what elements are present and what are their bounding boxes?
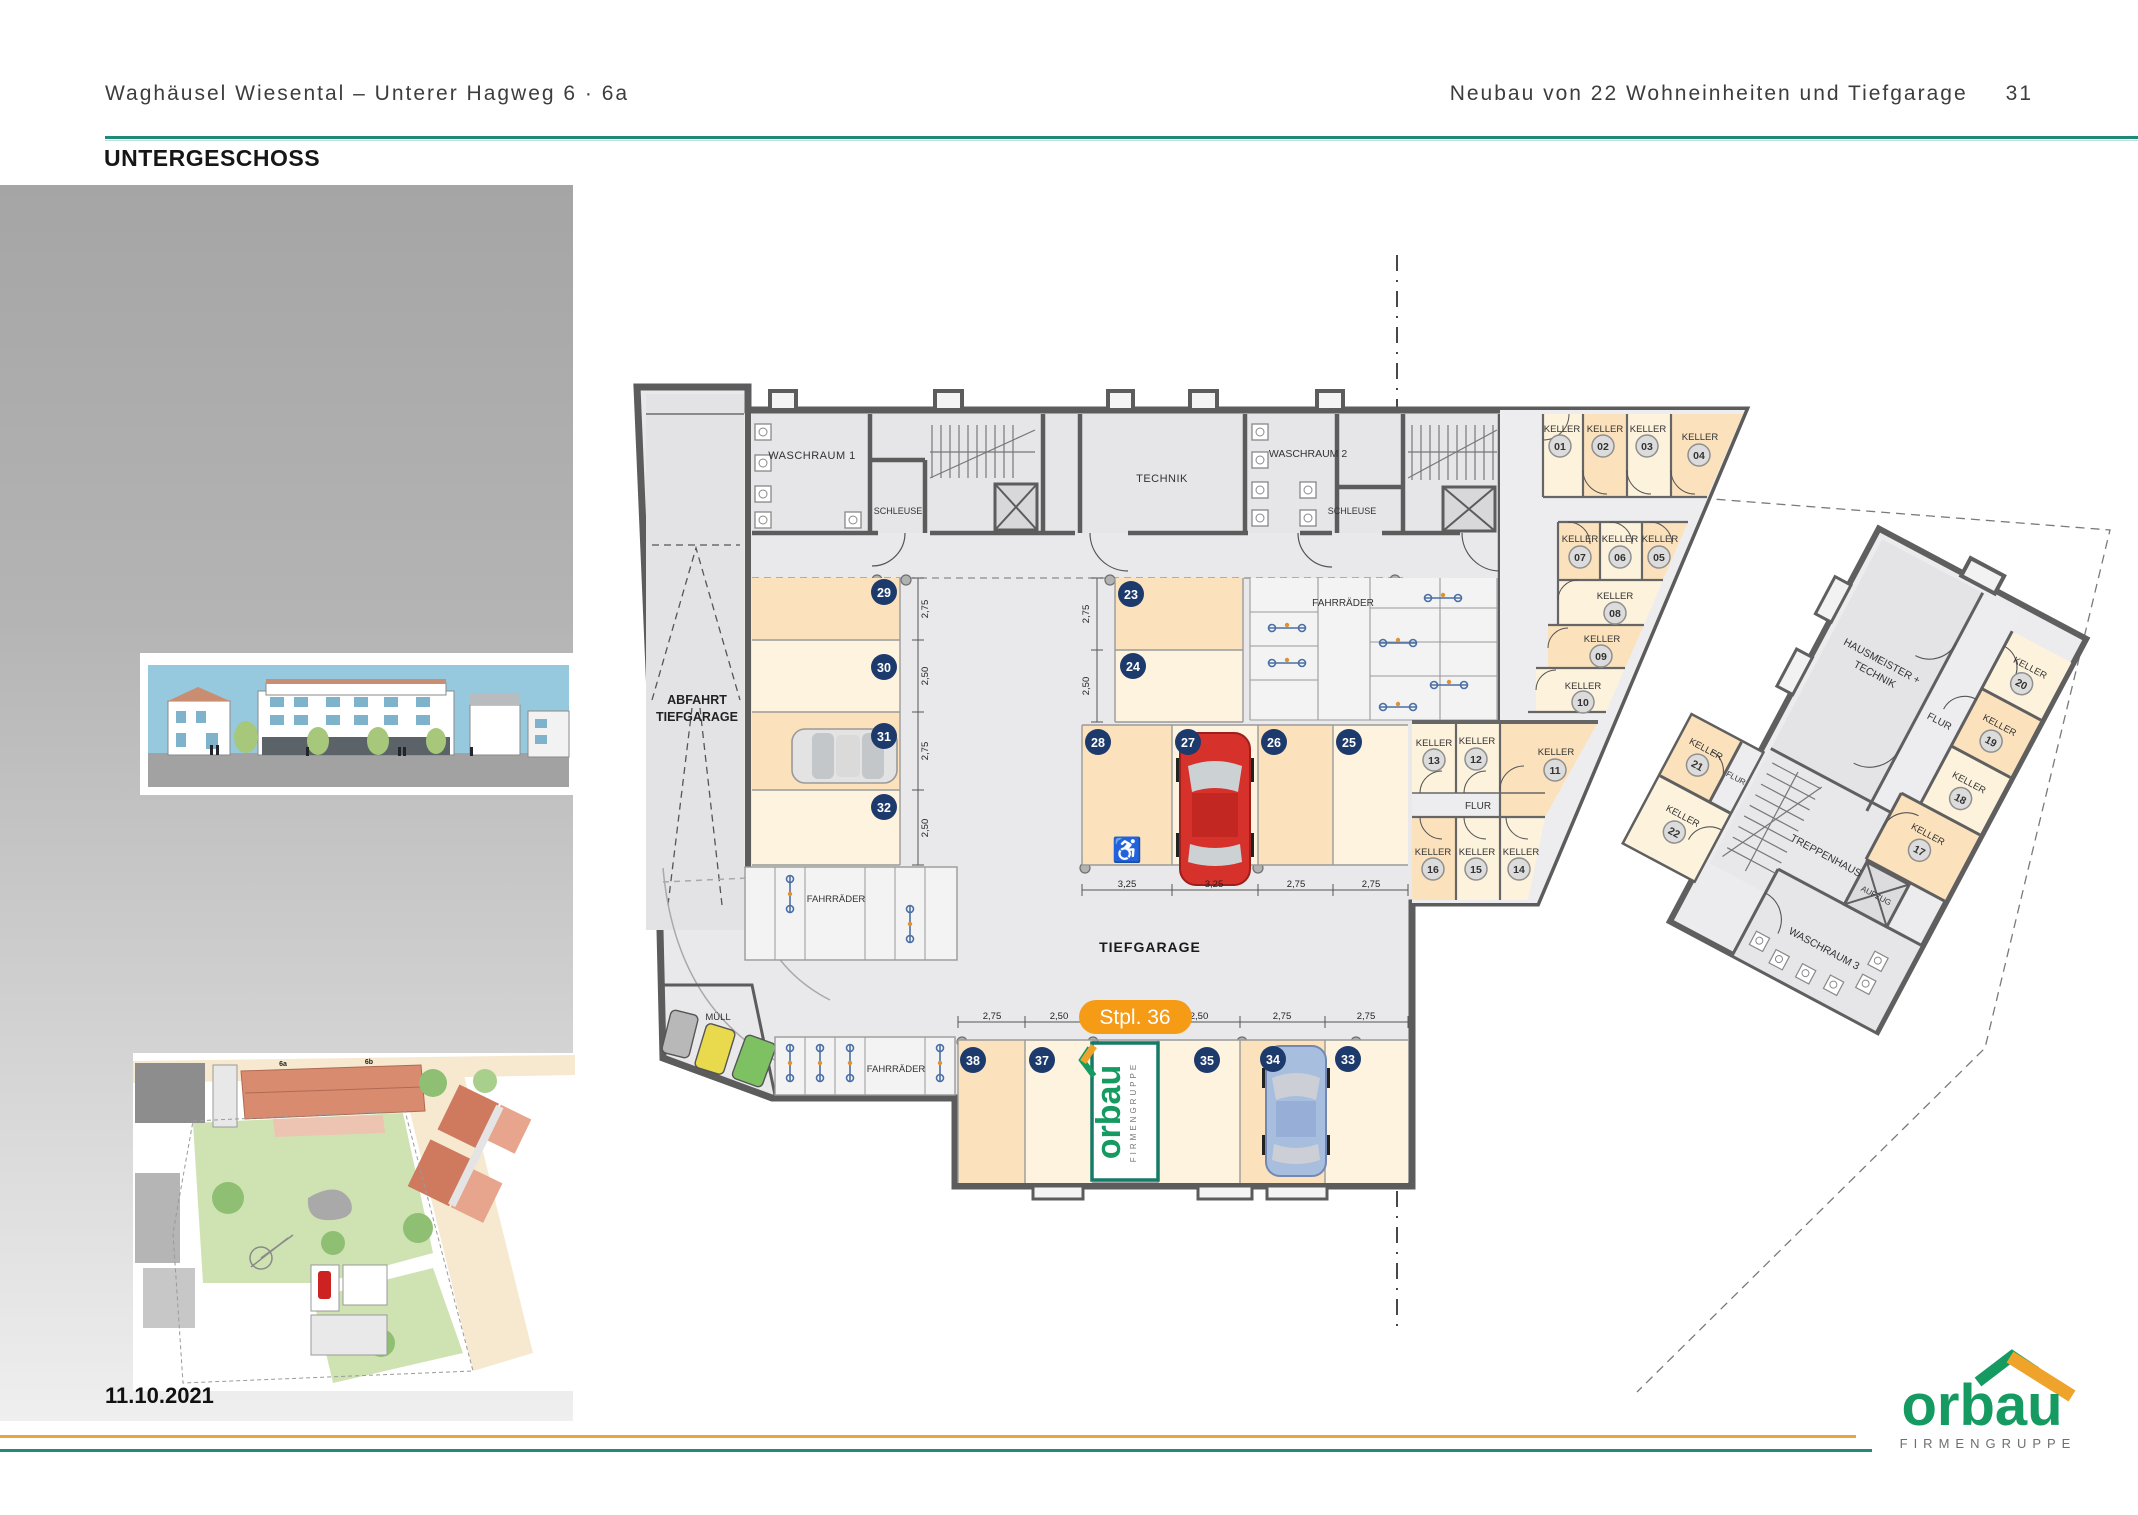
keller-02-label: KELLER	[1587, 424, 1624, 435]
dim-left-4: 2,50	[920, 819, 931, 838]
room-label-waschraum1: WASCHRAUM 1	[768, 450, 856, 462]
parking-spot-37: 37	[1035, 1054, 1049, 1068]
keller-09-number: 09	[1595, 651, 1607, 663]
room-label-fahrraeder-mid: FAHRRÄDER	[1312, 597, 1374, 609]
keller-06-label: KELLER	[1602, 534, 1639, 545]
room-label-waschraum2: WASCHRAUM 2	[1269, 448, 1348, 460]
keller-02-number: 02	[1597, 441, 1609, 453]
dim-bot-4: 2,75	[1273, 1011, 1292, 1022]
keller-03-label: KELLER	[1630, 424, 1667, 435]
keller-15-number: 15	[1470, 864, 1482, 876]
stellplatz-badge-label: Stpl. 36	[1099, 1006, 1170, 1029]
dim-right-2: 2,50	[1081, 677, 1092, 696]
parking-spot-34: 34	[1266, 1053, 1280, 1067]
parking-spot-23: 23	[1124, 588, 1138, 602]
keller-04-label: KELLER	[1682, 432, 1719, 443]
dim-left-2: 2,50	[920, 667, 931, 686]
dim-mid-2: 3,25	[1205, 879, 1224, 890]
keller-15-label: KELLER	[1459, 847, 1496, 858]
room-label-schleuse-west: SCHLEUSE	[874, 506, 923, 516]
room-label-fahrraeder-left: FAHRRÄDER	[807, 894, 866, 905]
document-page: Waghäusel Wiesental – Unterer Hagweg 6 ·…	[0, 0, 2138, 1515]
parking-spot-25: 25	[1342, 736, 1356, 750]
parking-spot-29: 29	[877, 586, 891, 600]
dim-bot-2: 2,50	[1050, 1011, 1069, 1022]
parking-spot-24: 24	[1126, 660, 1140, 674]
car-red	[1176, 733, 1254, 885]
keller-01-label: KELLER	[1544, 424, 1581, 435]
dim-bot-1: 2,75	[983, 1011, 1002, 1022]
company-logo: orbau FIRMENGRUPPE	[1860, 1330, 2120, 1470]
dim-mid-3: 2,75	[1287, 879, 1306, 890]
keller-11-number: 11	[1549, 765, 1560, 777]
logo-tagline: FIRMENGRUPPE	[1900, 1436, 2077, 1451]
keller-05-number: 05	[1653, 552, 1665, 564]
ramp-abfahrt: ABFAHRT TIEFGARAGE	[646, 394, 744, 930]
parking-west-column	[752, 578, 900, 865]
keller-08-number: 08	[1609, 608, 1621, 620]
dim-left-3: 2,75	[920, 742, 931, 761]
keller-07-label: KELLER	[1562, 534, 1599, 545]
keller-03-number: 03	[1641, 441, 1653, 453]
room-label-technik: TECHNIK	[1136, 473, 1188, 485]
keller-10-number: 10	[1577, 697, 1589, 709]
parking-spot-32: 32	[877, 801, 891, 815]
bike-area-left: FAHRRÄDER	[745, 867, 957, 960]
dim-right-1: 2,75	[1081, 605, 1092, 624]
keller-12-label: KELLER	[1459, 736, 1496, 747]
keller-11-label: KELLER	[1538, 747, 1575, 758]
keller-05-label: KELLER	[1642, 534, 1679, 545]
spot36-logo-tagline: FIRMENGRUPPE	[1129, 1062, 1138, 1162]
keller-16-number: 16	[1427, 864, 1439, 876]
room-label-flur-wing: FLUR	[1465, 801, 1491, 812]
spot36-logo-text: orbau	[1090, 1065, 1128, 1159]
keller-14-number: 14	[1513, 864, 1525, 876]
top-rooms-floor	[752, 414, 1500, 533]
keller-06-number: 06	[1614, 552, 1626, 564]
parking-spot-30: 30	[877, 661, 891, 675]
keller-08-label: KELLER	[1597, 591, 1634, 602]
keller-14-label: KELLER	[1503, 847, 1540, 858]
parking-spot-26: 26	[1267, 736, 1281, 750]
parking-spot-33: 33	[1341, 1053, 1355, 1067]
keller-16-label: KELLER	[1415, 847, 1452, 858]
dim-bot-5: 2,75	[1357, 1011, 1376, 1022]
room-label-muell: MÜLL	[705, 1012, 730, 1023]
dim-mid-1: 3,25	[1118, 879, 1137, 890]
keller-12-number: 12	[1470, 754, 1482, 766]
keller-13-label: KELLER	[1416, 738, 1453, 749]
keller-13-number: 13	[1428, 755, 1440, 767]
keller-01-number: 01	[1554, 441, 1566, 453]
ramp-label-line2: TIEFGARAGE	[656, 710, 738, 724]
bike-area-middle: FAHRRÄDER	[1250, 578, 1497, 720]
parking-spot-27: 27	[1181, 736, 1195, 750]
floor-plan: ABFAHRT TIEFGARAGE	[0, 0, 2138, 1515]
keller-04-number: 04	[1693, 450, 1705, 462]
room-label-fahrraeder-bottom: FAHRRÄDER	[867, 1064, 926, 1075]
parking-spot-28: 28	[1091, 736, 1105, 750]
keller-09-label: KELLER	[1584, 634, 1621, 645]
dim-left-1: 2,75	[920, 600, 931, 619]
parking-spot-36-highlight: orbau FIRMENGRUPPE	[1082, 1043, 1158, 1180]
parking-spot-38: 38	[966, 1054, 980, 1068]
keller-07-number: 07	[1574, 552, 1586, 564]
dim-bot-3: 2,50	[1190, 1011, 1209, 1022]
wheelchair-icon: ♿	[1112, 836, 1142, 864]
dim-mid-4: 2,75	[1362, 879, 1381, 890]
room-label-tiefgarage: TIEFGARAGE	[1099, 939, 1201, 955]
parking-spot-31: 31	[877, 730, 891, 744]
stellplatz-badge: Stpl. 36	[1079, 1000, 1192, 1034]
room-label-schleuse-east: SCHLEUSE	[1328, 506, 1377, 516]
parking-spot-35: 35	[1200, 1054, 1214, 1068]
ramp-label-line1: ABFAHRT	[667, 693, 727, 707]
logo-wordmark: orbau	[1901, 1373, 2062, 1438]
bike-area-bottom: FAHRRÄDER	[775, 1037, 955, 1095]
